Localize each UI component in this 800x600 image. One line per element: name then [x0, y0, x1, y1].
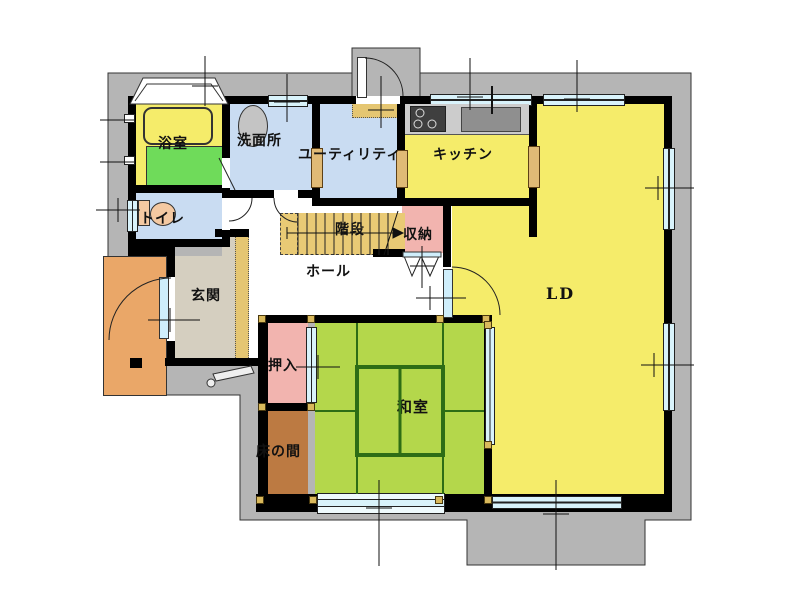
window-right-upper — [663, 148, 675, 230]
wall-top-left — [128, 96, 356, 104]
wall-toilet-bottom — [128, 239, 222, 247]
entrance-step-strip — [235, 237, 249, 358]
wall-closet-divider — [268, 403, 308, 411]
label-toilet: トイレ — [140, 208, 185, 228]
window-ld-bottom — [492, 496, 622, 509]
floor-plan: 浴室 洗面所 ユーティリティ キッチン トイレ 階段 収納 ホール 玄関 LD … — [0, 0, 800, 600]
label-living-dining: LD — [546, 284, 575, 303]
porch — [103, 256, 167, 396]
label-entrance: 玄関 — [191, 285, 221, 305]
label-storage: 収納 — [403, 224, 433, 244]
post — [435, 496, 443, 504]
opening-washroom-door — [274, 190, 298, 198]
backdoor-leaf — [357, 57, 367, 98]
label-utility: ユーティリティ — [298, 144, 401, 164]
post — [484, 321, 492, 329]
window-right-lower — [663, 323, 675, 411]
post — [258, 315, 266, 323]
fusuma-japanese-room-ld — [485, 327, 495, 445]
kitchen-sink — [461, 107, 521, 132]
label-japanese-room: 和室 — [397, 396, 429, 417]
post — [484, 496, 492, 504]
label-washroom: 洗面所 — [237, 130, 282, 150]
wall-hall-notch — [215, 229, 249, 237]
hall-ld-door-leaf — [443, 269, 453, 318]
wall-entrance-left-b — [167, 341, 175, 358]
post — [256, 496, 264, 504]
wall-entrance-bottom — [165, 358, 260, 366]
wall-storage-right — [443, 206, 451, 267]
post — [307, 403, 315, 411]
window-washroom-top — [268, 95, 308, 107]
fusuma-closet — [306, 327, 317, 403]
wall-bottom-left — [256, 494, 317, 512]
door-kitchen-ld — [528, 146, 540, 188]
vent-bath-left-a — [124, 114, 135, 123]
entrance-door-leaf — [159, 277, 169, 339]
wall-utility-bottom — [312, 198, 405, 206]
label-closet: 押入 — [268, 355, 298, 375]
label-kitchen: キッチン — [433, 144, 493, 164]
label-bathroom: 浴室 — [158, 133, 188, 153]
wall-entrance-left-a — [167, 256, 175, 277]
opening-toilet-door — [222, 198, 230, 230]
wall-entrance-top-left — [128, 247, 175, 256]
post — [484, 441, 492, 449]
staircase-lower-step — [280, 213, 298, 255]
gas-stove — [410, 106, 446, 132]
post — [436, 315, 444, 323]
post — [307, 315, 315, 323]
label-stairs: 階段 — [335, 219, 365, 239]
wall-stairs-bottom — [373, 249, 405, 257]
label-tokonoma: 床の間 — [256, 441, 301, 461]
window-engawa — [317, 493, 445, 514]
post — [258, 403, 266, 411]
post — [309, 496, 317, 504]
vent-bath-left-b — [124, 156, 135, 165]
wall-kitchen-bottom — [397, 198, 537, 206]
window-ld-top — [543, 94, 625, 106]
window-toilet-left — [127, 200, 138, 232]
wall-porch-stub — [130, 358, 142, 368]
wall-bath-bottom — [128, 185, 230, 193]
label-hall: ホール — [306, 261, 351, 281]
opening-bath-door — [222, 158, 230, 188]
